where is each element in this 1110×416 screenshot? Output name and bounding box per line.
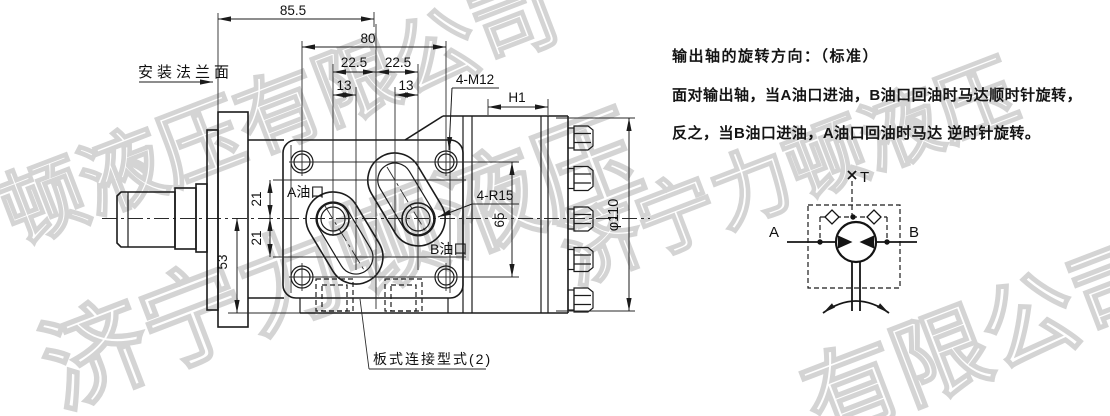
junction-dot <box>850 214 855 219</box>
dim-85-5: 85.5 <box>280 3 306 18</box>
dim-21-lower: 21 <box>249 230 264 245</box>
port-a-label: A油口 <box>287 184 324 200</box>
shaft-step <box>196 184 207 252</box>
dim-22-5-right: 22.5 <box>385 55 411 70</box>
notes-line2: 面对输出轴，当A油口进油，B油口回油时马达顺时针旋转， <box>672 86 1082 104</box>
flange-face-label: 安装法兰面 <box>138 64 233 81</box>
port-b-label: B油口 <box>430 241 467 257</box>
dim-13-right: 13 <box>398 78 413 93</box>
schematic-port-b: B <box>909 224 919 241</box>
connection-type-label: 板式连接型式(2) <box>373 351 492 367</box>
dim-13-left: 13 <box>336 78 351 93</box>
mount-holes-label: 4-M12 <box>456 72 494 87</box>
dim-80: 80 <box>360 31 375 46</box>
notes-title: 输出轴的旋转方向：（标准） <box>672 47 879 65</box>
dim-65: 65 <box>492 212 507 227</box>
slot-radius-label: 4-R15 <box>477 188 514 203</box>
check-valve-icon <box>825 210 839 224</box>
schematic-port-a: A <box>769 224 779 241</box>
check-valve-icon <box>867 210 881 224</box>
rotation-notes: 输出轴的旋转方向：（标准） 面对输出轴，当A油口进油，B油口回油时马达顺时针旋转… <box>672 47 1082 142</box>
schematic-port-t: T <box>860 169 869 186</box>
bidirectional-rotation-arrow-icon <box>823 301 889 313</box>
notes-line3: 反之，当B油口进油，A油口回油时马达 逆时针旋转。 <box>672 124 1040 142</box>
plate-chamfer <box>405 116 443 140</box>
dim-53: 53 <box>215 254 230 269</box>
dim-h1: H1 <box>508 90 525 105</box>
watermark: 顿液压有限公司 济宁力顿液压 济宁力顿液压 有限公司 <box>0 0 1110 416</box>
drawing-page: 顿液压有限公司 济宁力顿液压 济宁力顿液压 有限公司 <box>0 0 1110 416</box>
dim-21-upper: 21 <box>249 191 264 206</box>
dim-22-5-left: 22.5 <box>341 55 367 70</box>
dim-dia-110: φ110 <box>606 199 622 232</box>
engineering-drawing: 顿液压有限公司 济宁力顿液压 济宁力顿液压 有限公司 <box>0 0 1110 416</box>
